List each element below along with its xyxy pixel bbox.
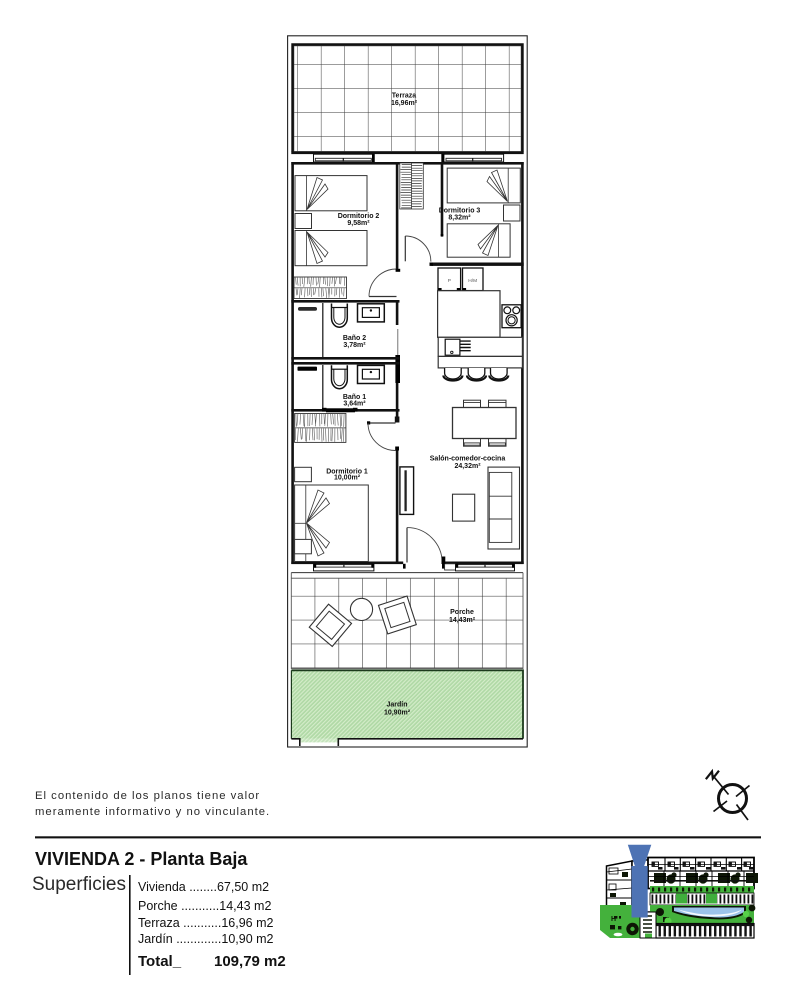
svg-text:10,00m²: 10,00m² <box>334 475 361 482</box>
svg-text:Jardín .............10,90 m2: Jardín .............10,90 m2 <box>138 932 274 946</box>
svg-text:Baño 2: Baño 2 <box>343 335 366 342</box>
svg-text:Jardín: Jardín <box>386 702 407 709</box>
svg-text:Total_: Total_ <box>138 953 182 970</box>
svg-text:Terraza ...........16,96 m2: Terraza ...........16,96 m2 <box>138 916 274 930</box>
svg-text:El contenido de los planos tie: El contenido de los planos tiene valor <box>35 790 260 802</box>
svg-text:109,79 m2: 109,79 m2 <box>214 953 286 970</box>
svg-text:VIVIENDA 2 - Planta Baja: VIVIENDA 2 - Planta Baja <box>35 849 248 869</box>
svg-text:Porche: Porche <box>450 609 474 616</box>
svg-text:H: H <box>611 916 616 923</box>
svg-text:10,90m²: 10,90m² <box>384 710 411 717</box>
svg-text:Superficies: Superficies <box>32 874 126 895</box>
svg-text:24,32m²: 24,32m² <box>454 463 481 470</box>
svg-text:3,64m²: 3,64m² <box>343 401 366 408</box>
svg-text:H/M: H/M <box>468 278 477 284</box>
svg-text:16,96m²: 16,96m² <box>391 100 418 107</box>
svg-text:Dormitorio 3: Dormitorio 3 <box>439 208 481 215</box>
svg-text:Terraza: Terraza <box>392 93 416 100</box>
svg-text:Vivienda ........67,50 m2: Vivienda ........67,50 m2 <box>138 880 269 894</box>
svg-text:8,32m²: 8,32m² <box>448 215 471 222</box>
svg-text:3,78m²: 3,78m² <box>343 342 366 349</box>
svg-text:meramente informativo y no vin: meramente informativo y no vinculante. <box>35 806 270 818</box>
svg-text:14,43m²: 14,43m² <box>449 617 476 624</box>
svg-text:P: P <box>448 278 451 284</box>
svg-text:Porche ...........14,43 m2: Porche ...........14,43 m2 <box>138 899 271 913</box>
svg-text:9,58m²: 9,58m² <box>347 220 370 227</box>
svg-text:Salón-comedor-cocina: Salón-comedor-cocina <box>430 456 506 463</box>
svg-text:Dormitorio 2: Dormitorio 2 <box>338 213 380 220</box>
